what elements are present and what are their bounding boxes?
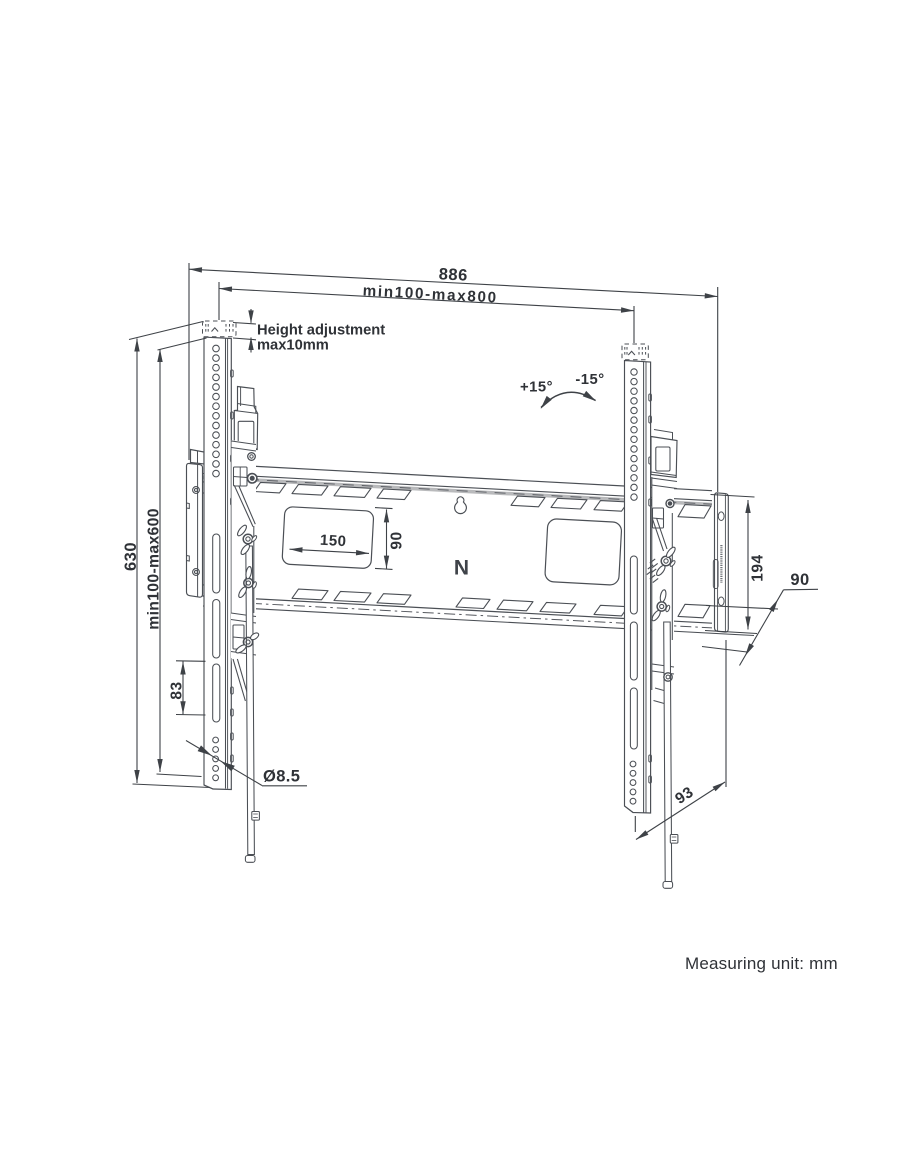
svg-text:+15°: +15° [520,380,553,396]
svg-text:630: 630 [122,542,140,571]
svg-text:Ø8.5: Ø8.5 [263,768,300,786]
svg-text:90: 90 [389,531,406,549]
svg-text:150: 150 [320,532,347,550]
svg-text:886: 886 [438,265,468,285]
svg-text:90: 90 [790,571,809,589]
svg-text:Height adjustment: Height adjustment [257,323,385,339]
svg-text:max10mm: max10mm [257,338,329,354]
svg-text:min100-max600: min100-max600 [146,508,163,630]
svg-text:Measuring unit: mm: Measuring unit: mm [685,954,838,973]
svg-text:194: 194 [750,554,767,581]
svg-text:83: 83 [169,681,186,699]
svg-text:N: N [454,557,469,580]
svg-text:-15°: -15° [575,372,604,388]
